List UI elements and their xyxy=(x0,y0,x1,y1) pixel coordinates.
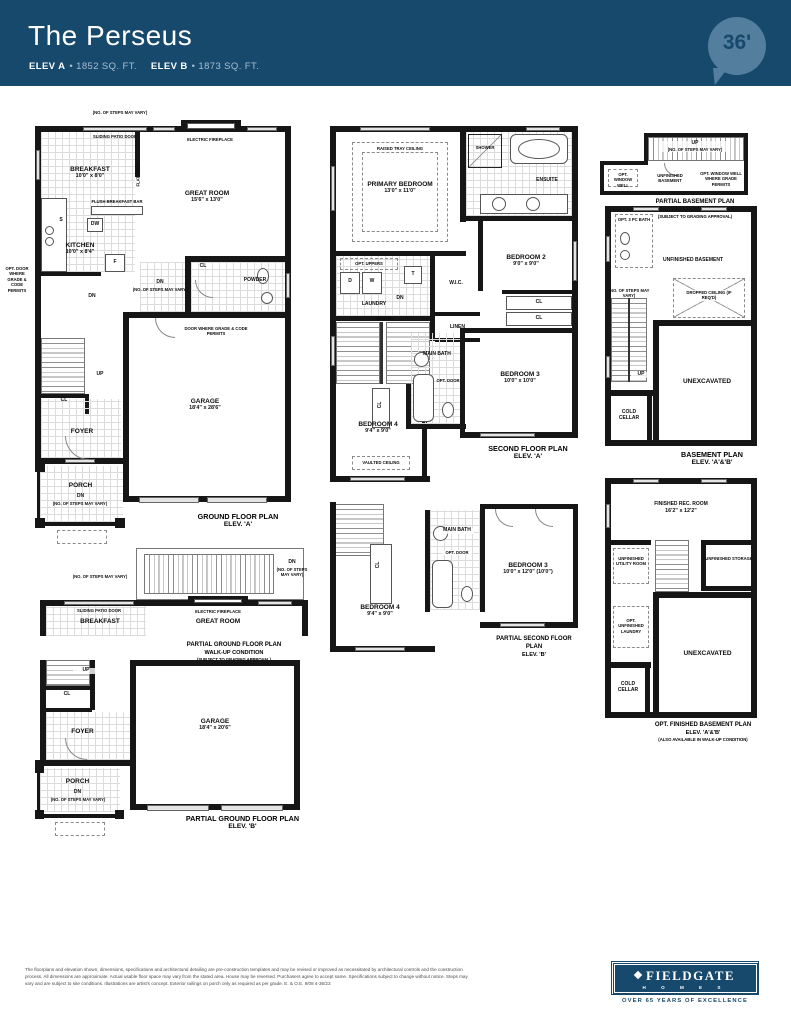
stairs-dn xyxy=(144,554,274,594)
fridge-label: F xyxy=(105,260,125,266)
closet-label: CL xyxy=(506,316,572,322)
stairs xyxy=(655,540,689,592)
wall xyxy=(130,660,136,810)
plan-partial-ground-b: UP CL FOYER PORCH DN (NO. OF STEPS MAY V… xyxy=(35,660,303,840)
room-dims: 10'0" x 12'0" (10'0") xyxy=(482,569,574,575)
garage-door xyxy=(207,497,267,503)
up-label: UP xyxy=(631,372,651,378)
foyer-label: FOYER xyxy=(55,728,110,735)
plan-opt-finished-basement: FINISHED REC. ROOM16'2" x 12'2" UNFINISH… xyxy=(605,478,757,740)
room-label-primary: PRIMARY BEDROOM13'0" x 11'0" xyxy=(355,181,445,195)
porch-rail xyxy=(37,814,123,818)
room-name: PRIMARY BEDROOM xyxy=(355,181,445,188)
ensuite-label: ENSUITE xyxy=(522,178,572,184)
window xyxy=(701,479,727,483)
caption-line: ELEV. 'A' xyxy=(185,521,291,530)
room-dims: 9'4" x 9'0" xyxy=(338,428,418,434)
main-bath-label: MAIN BATH xyxy=(440,528,474,534)
breakfast-bar-label: FLUSH BREAKFAST BAR xyxy=(89,199,145,204)
room-dims: 18'4" x 20'6" xyxy=(175,725,255,731)
kitchen-counter xyxy=(41,198,67,272)
unexcavated-label: UNEXCAVATED xyxy=(667,378,747,385)
cold-cellar-label: COLD CELLAR xyxy=(612,682,644,694)
steps-note: (NO. OF STEPS MAY VARY) xyxy=(80,110,160,115)
wall xyxy=(41,272,101,276)
toilet-fixture xyxy=(461,586,473,602)
stairs-up xyxy=(41,338,85,394)
main-bath-label: MAIN BATH xyxy=(422,352,452,358)
closet-label: CL xyxy=(49,398,79,404)
cold-cellar-label: COLD CELLAR xyxy=(613,410,645,422)
caption-second-floor-a: SECOND FLOOR PLANELEV. 'A' xyxy=(480,444,576,462)
wall xyxy=(600,161,646,165)
room-dims: 16'2" x 12'2" xyxy=(625,508,737,514)
wall xyxy=(330,502,336,652)
window xyxy=(606,504,610,528)
window xyxy=(606,236,610,262)
plan-partial-ground-walkup: DN (NO. OF STEPS MAY VARY) (NO. OF STEPS… xyxy=(40,548,308,668)
railing-label: RAILING xyxy=(365,316,405,321)
patio-door-window xyxy=(64,601,134,605)
window-well-label: OPT. WINDOW WELL xyxy=(609,172,637,188)
room-name: GARAGE xyxy=(175,718,255,725)
wall xyxy=(605,712,757,718)
great-room-label: GREAT ROOM xyxy=(185,618,251,625)
patio-door-label: SLIDING PATIO DOOR xyxy=(64,608,134,613)
sink-fixture xyxy=(620,250,630,260)
caption-line: ELEV. 'A'&'B' xyxy=(667,459,757,468)
porch-post xyxy=(35,462,45,472)
wall xyxy=(653,320,757,326)
dn-label: DN xyxy=(135,280,185,286)
window xyxy=(350,477,405,481)
unfinished-basement-label: UNFINISHED BASEMENT xyxy=(663,258,723,264)
tub-fixture xyxy=(432,560,453,608)
window xyxy=(701,207,727,211)
lot-width-badge: 36' xyxy=(708,17,766,75)
window xyxy=(247,127,277,131)
caption-line: OPT. FINISHED BASEMENT PLAN xyxy=(647,722,759,730)
room-dims: 9'4" x 9'0" xyxy=(340,611,420,617)
up-note: (NO. OF STEPS MAY VARY) xyxy=(605,288,653,299)
room-name: BEDROOM 4 xyxy=(338,421,418,428)
window xyxy=(331,166,335,211)
grade-note: OPT. WINDOW WELL WHERE GRADE PERMITS xyxy=(700,171,742,187)
stairs-dn xyxy=(336,322,380,384)
window xyxy=(286,273,290,298)
porch-label: PORCH xyxy=(53,482,108,489)
room-name: BEDROOM 3 xyxy=(482,562,574,569)
room-label-breakfast: BREAKFAST10'0" x 8'0" xyxy=(55,166,125,180)
fireplace-inset xyxy=(187,123,235,129)
dn-label: DN xyxy=(385,296,415,302)
logo-homes-text: H O M E S xyxy=(615,985,756,990)
storage-label: UNFINISHED STORAGE xyxy=(705,556,753,561)
fireplace-label: ELECTRIC FIREPLACE xyxy=(175,137,245,142)
patio-door-label: SLIDING PATIO DOOR xyxy=(83,134,147,139)
wall xyxy=(653,592,659,718)
caption-line: GROUND FLOOR PLAN xyxy=(185,512,291,521)
sink-fixture xyxy=(45,226,54,235)
window xyxy=(480,433,535,437)
porch-post xyxy=(35,810,44,819)
wall xyxy=(605,206,757,212)
logo-frame: FIELDGATE H O M E S xyxy=(611,961,759,995)
shower-label: SHOWER xyxy=(470,145,500,150)
wall xyxy=(572,126,578,438)
room-dims: 15'6" x 13'0" xyxy=(167,197,247,203)
wall xyxy=(647,396,652,440)
wall xyxy=(123,312,291,318)
dn-note: (NO. OF STEPS MAY VARY) xyxy=(274,567,310,578)
header-band: The Perseus ELEV A• 1852 SQ. FT.ELEV B• … xyxy=(0,0,791,86)
wall xyxy=(600,161,604,195)
unexcavated-label: UNEXCAVATED xyxy=(665,650,750,657)
breakfast-bar xyxy=(91,206,143,215)
logo-tagline: OVER 65 YEARS OF EXCELLENCE xyxy=(611,998,759,1004)
breakfast-label: BREAKFAST xyxy=(65,618,135,625)
room-dims: 9'0" x 9'0" xyxy=(486,261,566,267)
caption-line: BASEMENT PLAN xyxy=(667,450,757,459)
garage-door xyxy=(139,497,199,503)
plan-partial-second-b: CL MAIN BATH OPT. DOOR BEDROOM 310'0" x … xyxy=(330,502,578,664)
unfinished-basement-label: UNFINISHED BASEMENT xyxy=(646,173,694,184)
stair-railing xyxy=(628,298,630,382)
stair-railing xyxy=(380,322,383,384)
plan-basement: OPT. 3 PC BATH UNFINISHED BASEMENT (NO. … xyxy=(605,206,757,468)
room-name: BREAKFAST xyxy=(55,166,125,173)
vaulted-label: VAULTED CEILING xyxy=(354,460,408,465)
washer-label: W xyxy=(362,279,382,285)
fireplace-inset xyxy=(194,599,242,603)
porch-post xyxy=(35,764,44,773)
plan-second-floor-a: RAISED TRAY CEILING PRIMARY BEDROOM13'0"… xyxy=(330,126,578,486)
opt-door-note: OPT. DOOR WHERE GRADE & CODE PERMITS xyxy=(2,266,32,293)
powder-label: POWDER xyxy=(231,278,279,284)
caption-line: SECOND FLOOR PLAN xyxy=(480,444,576,453)
caption-opt-finished-basement: OPT. FINISHED BASEMENT PLANELEV. 'A'&'B'… xyxy=(647,722,759,743)
disclaimer-text: The floorplans and elevation shown, dime… xyxy=(25,967,471,988)
wall xyxy=(40,686,92,690)
wall xyxy=(701,540,757,545)
flat-arch-label: FLAT ARCH xyxy=(135,160,140,190)
window xyxy=(258,601,292,605)
garage-door-note: DOOR WHERE GRADE & CODE PERMITS xyxy=(177,326,255,337)
wall xyxy=(605,440,757,446)
up-label: UP xyxy=(87,372,113,378)
tub-label: T xyxy=(404,272,422,278)
foyer-floor xyxy=(46,712,130,760)
caption-line: (ALSO AVAILABLE IN WALK-UP CONDITION) xyxy=(647,737,759,742)
laundry-label: LAUNDRY xyxy=(344,302,404,308)
caption-basement: BASEMENT PLANELEV. 'A'&'B' xyxy=(667,450,757,468)
caption-ground-floor-a: GROUND FLOOR PLANELEV. 'A' xyxy=(185,512,291,530)
closet-label: CL xyxy=(378,392,384,418)
wall xyxy=(302,600,308,636)
logo-wordmark: FIELDGATE xyxy=(615,968,756,984)
room-label-kitchen: KITCHEN10'0" x 8'4" xyxy=(49,242,111,256)
logo-box: FIELDGATE H O M E S xyxy=(614,964,757,993)
diamond-icon xyxy=(634,970,642,978)
wall xyxy=(701,586,757,591)
room-name: GREAT ROOM xyxy=(167,190,247,197)
room-label-bedroom3: BEDROOM 310'0" x 10'0" xyxy=(475,371,565,385)
caption-line: ELEV. 'B' xyxy=(185,823,300,832)
wall xyxy=(611,540,651,545)
porch-rail xyxy=(37,466,40,526)
caption-partial-ground-b: PARTIAL GROUND FLOOR PLANELEV. 'B' xyxy=(185,814,300,832)
room-label-bedroom4: BEDROOM 49'4" x 9'0" xyxy=(338,421,418,435)
elevation-summary: ELEV A• 1852 SQ. FT.ELEV B• 1873 SQ. FT. xyxy=(29,61,259,72)
wall xyxy=(751,206,757,446)
room-name: BEDROOM 3 xyxy=(475,371,565,378)
garage-door xyxy=(147,805,209,811)
elev-b-sqft: • 1873 SQ. FT. xyxy=(192,61,260,72)
wall xyxy=(35,760,135,766)
wall xyxy=(465,328,578,333)
room-dims: 10'0" x 10'0" xyxy=(475,378,565,384)
caption-line: ELEV. 'A'&'B' xyxy=(647,730,759,737)
caption-partial-second-b: PARTIAL SECOND FLOOR PLANELEV. 'B' xyxy=(490,636,578,659)
elev-a-label: ELEV A xyxy=(29,61,65,72)
lot-width-value: 36' xyxy=(708,31,766,55)
porch-steps xyxy=(57,530,107,544)
wall xyxy=(294,660,300,810)
window xyxy=(500,623,545,627)
tray-label: RAISED TRAY CEILING xyxy=(365,146,435,151)
badge-tail xyxy=(713,68,728,85)
builder-logo: FIELDGATE H O M E S OVER 65 YEARS OF EXC… xyxy=(611,961,759,1004)
wall xyxy=(130,660,300,666)
window xyxy=(573,241,577,281)
window xyxy=(153,127,175,131)
porch-label: PORCH xyxy=(50,778,105,785)
plan-ground-floor-a: (NO. OF STEPS MAY VARY) xyxy=(35,110,291,550)
rec-room-label: FINISHED REC. ROOM16'2" x 12'2" xyxy=(625,502,737,514)
dn-note: (NO. OF STEPS MAY VARY) xyxy=(43,797,113,802)
wic-label: W.I.C. xyxy=(432,281,480,287)
wall xyxy=(653,592,757,598)
foyer-label: FOYER xyxy=(57,428,107,435)
caption-line: PARTIAL GROUND FLOOR PLAN xyxy=(160,642,308,650)
caption-line: PARTIAL GROUND FLOOR PLAN xyxy=(185,814,300,823)
window xyxy=(633,207,659,211)
sink-fixture xyxy=(526,197,540,211)
wall xyxy=(460,328,465,432)
wall xyxy=(744,133,748,195)
floorplan-sheet: The Perseus ELEV A• 1852 SQ. FT.ELEV B• … xyxy=(0,0,791,1024)
porch-post xyxy=(115,810,124,819)
dn-label: DN xyxy=(276,560,308,566)
wall xyxy=(480,506,485,612)
room-label-bedroom3: BEDROOM 310'0" x 12'0" (10'0") xyxy=(482,562,574,576)
room-name: KITCHEN xyxy=(49,242,111,249)
wall xyxy=(701,540,706,590)
garage-door xyxy=(221,805,283,811)
opt-bath-label: OPT. 3 PC BATH xyxy=(616,217,652,222)
window xyxy=(355,647,405,651)
window xyxy=(331,336,335,366)
opt-uppers-label: OPT. UPPERS xyxy=(342,261,396,266)
window xyxy=(526,127,560,131)
toilet-fixture xyxy=(442,402,454,418)
door-arc xyxy=(155,318,175,338)
porch-rail xyxy=(37,522,123,526)
room-label-bedroom4: BEDROOM 49'4" x 9'0" xyxy=(340,604,420,618)
dn-note: (NO. OF STEPS MAY VARY) xyxy=(130,287,190,292)
room-label-garage: GARAGE18'4" x 20'6" xyxy=(175,718,255,732)
logo-name-text: FIELDGATE xyxy=(646,968,735,983)
wall xyxy=(645,668,650,712)
room-dims: 10'0" x 8'4" xyxy=(49,249,111,255)
room-dims: 18'4" x 28'6" xyxy=(165,405,245,411)
closet-label: CL xyxy=(506,300,572,306)
tub-fixture xyxy=(413,374,434,422)
wall xyxy=(435,312,480,316)
dn-label: DN xyxy=(50,790,105,796)
sink-fixture xyxy=(492,197,506,211)
room-dims: 13'0" x 11'0" xyxy=(355,188,445,194)
fireplace-label: ELECTRIC FIREPLACE xyxy=(185,609,251,614)
opt-door-label: OPT. DOOR xyxy=(442,550,472,555)
window xyxy=(360,127,430,131)
wall xyxy=(502,290,578,294)
up-label: UP xyxy=(73,668,99,674)
caption-line: WALK-UP CONDITION xyxy=(160,650,308,657)
room-label-bedroom2: BEDROOM 29'0" x 9'0" xyxy=(486,254,566,268)
patio-door-window xyxy=(83,127,147,131)
room-name: GARAGE xyxy=(165,398,245,405)
caption-line: ELEV. 'A' xyxy=(480,453,576,462)
room-dims: 10'0" x 8'0" xyxy=(55,173,125,179)
dn-label: DN xyxy=(53,494,108,500)
sink-label: S xyxy=(55,218,67,224)
laundry-label: OPT. UNFINISHED LAUNDRY xyxy=(614,618,648,634)
window xyxy=(633,479,659,483)
porch-post xyxy=(115,518,125,528)
shower-stall xyxy=(468,134,502,168)
steps-note: (NO. OF STEPS MAY VARY) xyxy=(70,574,130,579)
dn-label: DN xyxy=(79,294,105,300)
porch-steps xyxy=(55,822,105,836)
dn-note: (NO. OF STEPS MAY VARY) xyxy=(45,501,115,506)
utility-label: UNFINISHED UTILITY ROOM xyxy=(614,556,648,567)
up-label: UP xyxy=(660,141,730,147)
wall xyxy=(751,478,757,718)
window xyxy=(36,150,40,180)
wall xyxy=(600,191,748,195)
closet-label: CL xyxy=(47,692,87,698)
dryer-label: D xyxy=(340,279,360,285)
elev-a-sqft: • 1852 SQ. FT. xyxy=(69,61,137,72)
caption-line: ELEV. 'B' xyxy=(490,652,578,659)
room-label-great-room: GREAT ROOM15'6" x 13'0" xyxy=(167,190,247,204)
closet-label: CL xyxy=(185,264,221,270)
dw-label: DW xyxy=(87,222,103,228)
wall xyxy=(605,478,757,484)
dropped-ceiling-label: DROPPED CEILING (IF REQ'D) xyxy=(685,290,733,301)
window xyxy=(606,356,610,378)
elev-b-label: ELEV B xyxy=(151,61,188,72)
closet-label: CL xyxy=(376,552,382,578)
door-arc xyxy=(535,509,553,527)
room-label-garage: GARAGE18'4" x 28'6" xyxy=(165,398,245,412)
room-name: BEDROOM 2 xyxy=(486,254,566,261)
toilet-fixture xyxy=(620,232,630,245)
porch-post xyxy=(35,518,45,528)
wall xyxy=(123,318,129,502)
room-name: BEDROOM 4 xyxy=(340,604,420,611)
tub-basin xyxy=(518,139,560,159)
opt-door-label: OPT. DOOR xyxy=(436,378,460,383)
front-door xyxy=(65,459,95,463)
wall xyxy=(653,320,659,446)
page-title: The Perseus xyxy=(28,20,192,52)
sink-fixture xyxy=(261,292,273,304)
caption-line: PARTIAL SECOND FLOOR PLAN xyxy=(490,636,578,652)
linen-label: LINEN xyxy=(435,325,480,331)
up-note: (NO. OF STEPS MAY VARY) xyxy=(660,147,730,152)
door-arc xyxy=(495,509,513,527)
